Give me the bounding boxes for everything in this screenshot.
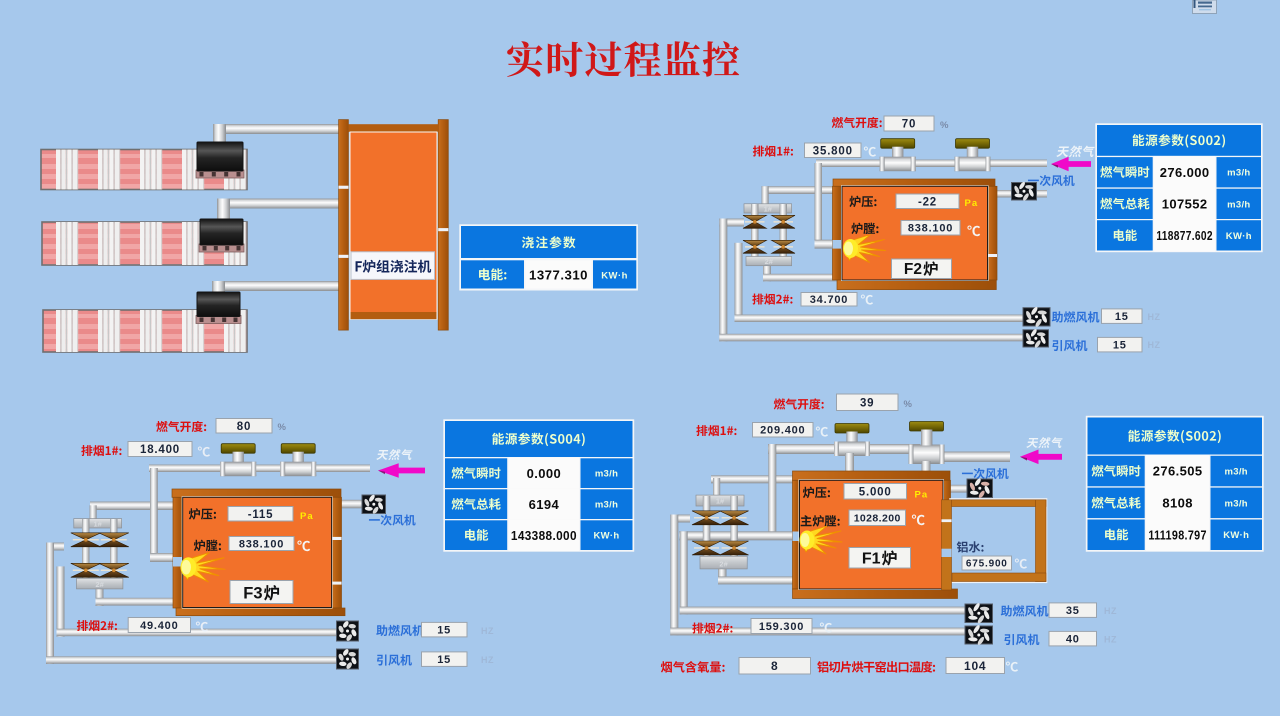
svg-text:276.000: 276.000: [1160, 165, 1210, 180]
svg-text:HZ: HZ: [1148, 340, 1161, 350]
svg-text:111198.797: 111198.797: [1148, 527, 1207, 542]
svg-text:HZ: HZ: [481, 626, 494, 636]
svg-text:15: 15: [1115, 311, 1129, 323]
svg-text:HZ: HZ: [481, 655, 494, 665]
svg-text:Pa: Pa: [915, 490, 929, 501]
svg-text:1#: 1#: [764, 204, 773, 213]
svg-text:15: 15: [437, 654, 451, 666]
svg-text:838.100: 838.100: [908, 223, 953, 235]
svg-text:HZ: HZ: [1104, 606, 1117, 616]
svg-text:Pa: Pa: [300, 511, 314, 522]
svg-text:118877.602: 118877.602: [1156, 228, 1213, 243]
svg-text:-22: -22: [918, 196, 937, 208]
svg-text:104: 104: [964, 659, 986, 673]
svg-text:15: 15: [437, 625, 451, 637]
svg-text:KW·h: KW·h: [594, 531, 620, 542]
svg-text:1377.310: 1377.310: [529, 267, 588, 282]
svg-text:35.800: 35.800: [813, 145, 853, 157]
svg-text:35: 35: [1066, 605, 1080, 617]
svg-text:%: %: [904, 399, 913, 410]
svg-text:2#: 2#: [765, 257, 774, 266]
svg-text:8108: 8108: [1162, 496, 1193, 511]
svg-text:m3/h: m3/h: [1225, 467, 1248, 478]
svg-text:KW·h: KW·h: [601, 270, 628, 281]
svg-text:F1: F1: [862, 551, 881, 568]
svg-text:m3/h: m3/h: [595, 500, 618, 511]
svg-text:1#: 1#: [716, 497, 725, 506]
svg-text:39: 39: [860, 397, 874, 409]
svg-text:m3/h: m3/h: [1227, 199, 1250, 210]
svg-text:6194: 6194: [529, 497, 560, 512]
svg-text:276.505: 276.505: [1153, 464, 1203, 479]
svg-text:675.900: 675.900: [966, 559, 1008, 570]
svg-text:107552: 107552: [1162, 197, 1208, 212]
svg-text:Pa: Pa: [965, 198, 979, 209]
svg-text:-115: -115: [248, 509, 274, 521]
svg-text:KW·h: KW·h: [1223, 530, 1249, 541]
svg-text:m3/h: m3/h: [595, 469, 618, 480]
svg-text:KW·h: KW·h: [1226, 231, 1252, 242]
svg-text:%: %: [940, 120, 949, 131]
svg-text:49.400: 49.400: [140, 620, 178, 632]
svg-text:34.700: 34.700: [810, 294, 848, 306]
svg-text:40: 40: [1066, 634, 1080, 646]
svg-text:70: 70: [902, 119, 916, 131]
svg-text:15: 15: [1113, 340, 1127, 352]
svg-text:159.300: 159.300: [759, 621, 804, 633]
svg-text:209.400: 209.400: [760, 425, 805, 437]
svg-text:2#: 2#: [719, 559, 728, 568]
svg-text:5.000: 5.000: [859, 486, 892, 498]
svg-text:1028.200: 1028.200: [854, 513, 901, 525]
svg-text:80: 80: [237, 421, 251, 433]
svg-text:838.100: 838.100: [239, 539, 284, 551]
svg-text:8: 8: [771, 659, 778, 673]
svg-text:1#: 1#: [94, 519, 103, 528]
svg-text:HZ: HZ: [1148, 312, 1161, 322]
svg-text:2#: 2#: [96, 580, 105, 589]
svg-text:m3/h: m3/h: [1227, 168, 1250, 179]
svg-text:143388.000: 143388.000: [511, 528, 577, 543]
svg-text:m3/h: m3/h: [1225, 498, 1248, 509]
svg-text:F3: F3: [243, 585, 262, 603]
svg-text:18.400: 18.400: [140, 444, 180, 456]
svg-text:HZ: HZ: [1104, 635, 1117, 645]
svg-text:0.000: 0.000: [527, 466, 562, 481]
svg-text:%: %: [278, 422, 287, 433]
svg-text:F2: F2: [904, 261, 922, 278]
